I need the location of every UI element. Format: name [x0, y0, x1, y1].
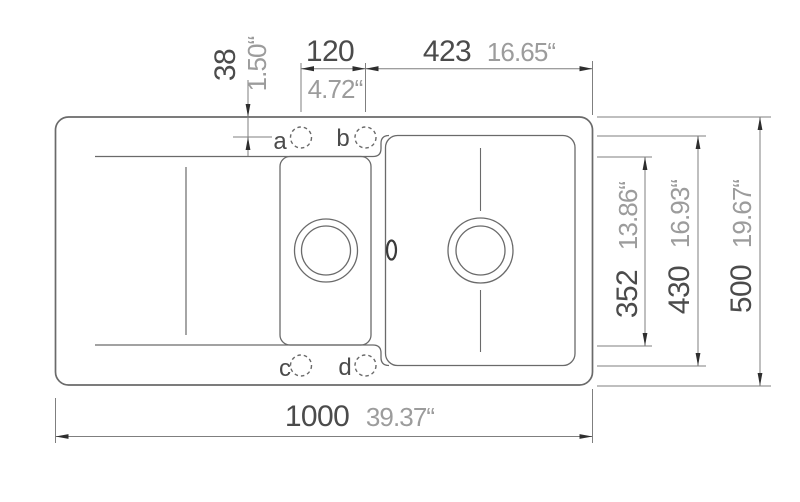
tap-hole-a-circle — [291, 127, 312, 148]
tap-hole-c-label: c — [279, 357, 291, 381]
dim-500-inch-label: 19.67“ — [729, 180, 755, 248]
tap-hole-d-circle — [355, 355, 376, 376]
tap-hole-b-label: b — [336, 127, 349, 151]
dim-423-inch-label: 16.65“ — [487, 39, 555, 65]
overflow-icon — [387, 241, 396, 260]
dim-120-mm-label: 120 — [306, 37, 354, 67]
dim-38-mm-label: 38 — [211, 49, 241, 81]
tap-hole-c-circle — [291, 355, 312, 376]
dim-1000-inch-label: 39.37“ — [366, 404, 434, 430]
tap-hole-b-circle — [355, 127, 376, 148]
small-bowl-drain-inner-icon — [302, 226, 351, 275]
dim-500-mm-label: 500 — [727, 265, 757, 313]
large-bowl-drain-icon — [448, 218, 513, 283]
tap-hole-d-label: d — [338, 356, 351, 380]
dim-352-mm-label: 352 — [613, 270, 643, 318]
dim-120-inch-label: 4.72“ — [308, 76, 363, 102]
dim-1000-mm-label: 1000 — [285, 402, 349, 432]
dim-430-mm-label: 430 — [665, 266, 695, 314]
dim-352-inch-label: 13.86“ — [615, 182, 641, 250]
dimension-arrowheads — [56, 66, 763, 439]
sink-dimension-drawing: 120 4.72“ 423 16.65“ 38 1.50“ 352 13.86“… — [0, 0, 800, 502]
dim-38-inch-label: 1.50“ — [244, 37, 270, 92]
large-bowl-drain-inner-icon — [456, 226, 505, 275]
dim-430-inch-label: 16.93“ — [667, 180, 693, 248]
tap-hole-a-label: a — [273, 130, 286, 154]
dim-423-mm-label: 423 — [423, 37, 471, 67]
small-bowl-drain-icon — [295, 219, 358, 282]
